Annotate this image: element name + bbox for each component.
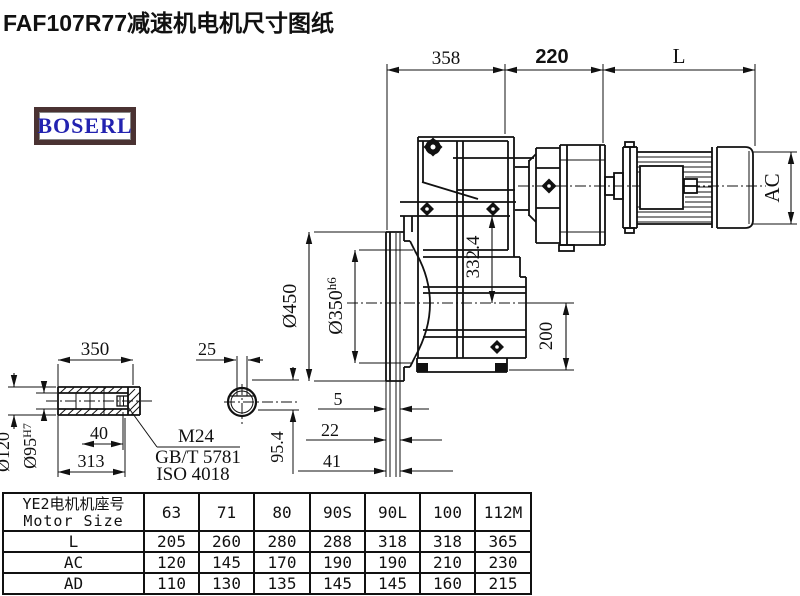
cell-L-100: 318 xyxy=(420,531,475,552)
row-label-AC: AC xyxy=(3,552,144,573)
cell-AC-80: 170 xyxy=(254,552,310,573)
dim-bore-tolerance: H7 xyxy=(20,423,34,438)
motor-size-table: YE2电机机座号 Motor Size 63 71 80 90S 90L 100… xyxy=(2,492,532,595)
dim-spigot-value: Ø350 xyxy=(325,290,347,334)
table-row-L: L 205 260 280 288 318 318 365 xyxy=(3,531,531,552)
cell-L-71: 260 xyxy=(199,531,254,552)
dim-flange-od: Ø450 xyxy=(279,284,301,328)
dim-bore: Ø95H7 xyxy=(20,423,40,469)
row-label-L: L xyxy=(3,531,144,552)
cell-AC-112M: 230 xyxy=(475,552,531,573)
col-90L: 90L xyxy=(365,493,420,531)
cell-L-90L: 318 xyxy=(365,531,420,552)
note-std2: ISO 4018 xyxy=(156,464,229,485)
cell-AD-80: 135 xyxy=(254,573,310,594)
cell-AD-112M: 215 xyxy=(475,573,531,594)
cell-AD-90S: 145 xyxy=(310,573,365,594)
motor xyxy=(623,142,753,233)
dimension-drawing: 358 220 L AC Ø450 Ø350h6 332.4 200 5 22 … xyxy=(0,0,800,492)
dim-40: 40 xyxy=(90,423,108,443)
cell-AD-63: 110 xyxy=(144,573,199,594)
col-100: 100 xyxy=(420,493,475,531)
note-bolt: M24 xyxy=(178,426,214,447)
col-90S: 90S xyxy=(310,493,365,531)
col-80: 80 xyxy=(254,493,310,531)
cell-AC-90L: 190 xyxy=(365,552,420,573)
cell-AC-71: 145 xyxy=(199,552,254,573)
dim-key-h: 95.4 xyxy=(267,431,287,463)
dim-332: 332.4 xyxy=(463,235,484,278)
cell-L-63: 205 xyxy=(144,531,199,552)
cell-AC-63: 120 xyxy=(144,552,199,573)
dim-358: 358 xyxy=(432,48,461,69)
dimension-labels: 358 220 L AC Ø450 Ø350h6 332.4 200 5 22 … xyxy=(0,44,784,485)
dim-5: 5 xyxy=(334,389,343,409)
dim-bore-value: Ø95 xyxy=(20,438,40,469)
cell-AD-90L: 145 xyxy=(365,573,420,594)
dim-25: 25 xyxy=(198,339,216,359)
col-63: 63 xyxy=(144,493,199,531)
table-header-row: YE2电机机座号 Motor Size 63 71 80 90S 90L 100… xyxy=(3,493,531,531)
input-adapter xyxy=(515,145,623,251)
cell-AC-90S: 190 xyxy=(310,552,365,573)
dim-AC: AC xyxy=(760,173,784,202)
drawing-page: FAF107R77减速机电机尺寸图纸 BOSERL xyxy=(0,0,800,596)
cell-L-90S: 288 xyxy=(310,531,365,552)
col-112M: 112M xyxy=(475,493,531,531)
dim-220: 220 xyxy=(535,46,568,68)
cell-L-80: 280 xyxy=(254,531,310,552)
header-en: Motor Size xyxy=(4,513,143,529)
col-71: 71 xyxy=(199,493,254,531)
cell-AD-100: 160 xyxy=(420,573,475,594)
dim-22: 22 xyxy=(321,420,339,440)
dim-350: 350 xyxy=(81,339,110,360)
dim-200: 200 xyxy=(536,322,557,351)
cell-AC-100: 210 xyxy=(420,552,475,573)
dim-41: 41 xyxy=(323,451,341,471)
table-row-AC: AC 120 145 170 190 190 210 230 xyxy=(3,552,531,573)
header-cn: YE2电机机座号 xyxy=(4,496,143,513)
cell-L-112M: 365 xyxy=(475,531,531,552)
dim-313: 313 xyxy=(78,451,105,471)
table-header-label: YE2电机机座号 Motor Size xyxy=(3,493,144,531)
dim-shaft-od: Ø120 xyxy=(0,432,13,472)
dim-spigot: Ø350h6 xyxy=(324,277,347,335)
row-label-AD: AD xyxy=(3,573,144,594)
dim-L: L xyxy=(673,44,686,68)
dimension-lines xyxy=(14,70,791,472)
cell-AD-71: 130 xyxy=(199,573,254,594)
table-row-AD: AD 110 130 135 145 145 160 215 xyxy=(3,573,531,594)
dim-spigot-tolerance: h6 xyxy=(324,277,339,291)
